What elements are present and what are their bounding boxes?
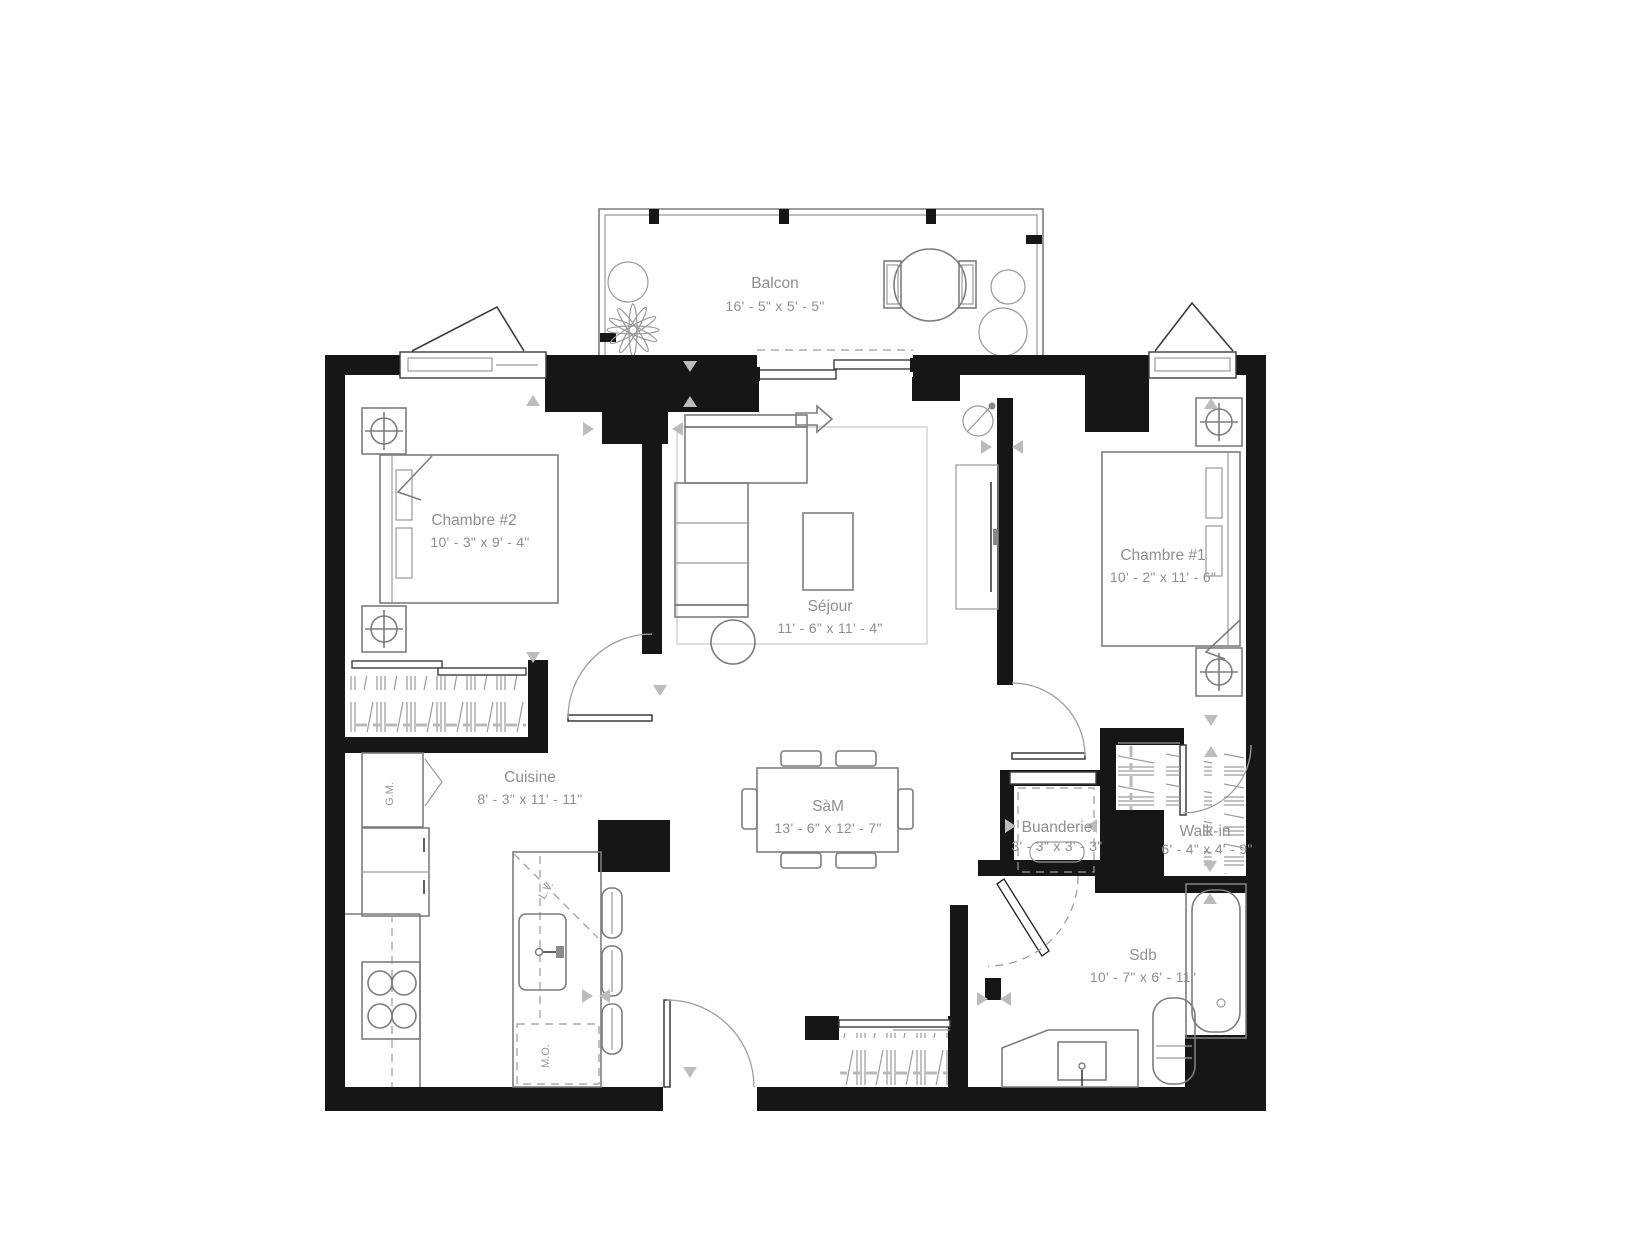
tub-drain	[1217, 999, 1225, 1007]
linen-closet-hanging	[1118, 746, 1180, 810]
bedroom2-furniture	[350, 408, 558, 732]
dishwasher-diagonal	[514, 854, 598, 938]
plant-bush	[979, 308, 1027, 356]
room-label-sdb: Sdb	[1129, 947, 1157, 964]
room-dims-chambre1: 10' - 2" x 11' - 6"	[1110, 569, 1216, 585]
kitchen-island	[513, 852, 601, 1087]
sofa-arm	[675, 605, 748, 617]
cabinet-door-fold	[425, 759, 442, 806]
bedroom1-door	[1012, 753, 1085, 759]
dining-chair	[742, 789, 757, 829]
railing-post	[649, 209, 659, 224]
entrance-door	[664, 1000, 670, 1087]
sliding-panel	[758, 370, 836, 379]
coffee-table	[803, 513, 853, 590]
railing-post	[926, 209, 936, 224]
blanket-fold	[398, 456, 432, 500]
vanity	[1002, 1030, 1138, 1087]
dining-chair	[836, 853, 876, 868]
pillow	[396, 470, 412, 520]
burner	[368, 1004, 392, 1028]
area-rug	[677, 427, 927, 644]
walls	[325, 355, 1266, 1111]
dining-chair	[836, 751, 876, 766]
closet-track	[352, 661, 442, 668]
pantry-label: G.M.	[384, 782, 396, 806]
room-label-sejour: Séjour	[808, 598, 853, 615]
window-sash-open	[412, 307, 524, 351]
plant-palm	[607, 304, 659, 356]
closet-track	[438, 668, 526, 675]
entrance-gap	[663, 1085, 757, 1113]
faucet	[1079, 1063, 1085, 1069]
appliance-labels: G.M. L.V. M.O.	[384, 782, 556, 1068]
room-dims-cuisine: 8' - 3" x 11' - 11"	[477, 791, 582, 807]
room-dims-walkin: 6' - 4" x 4' - 9"	[1161, 841, 1252, 857]
room-dims-chambre2: 10' - 3" x 9' - 4"	[430, 534, 529, 550]
faucet	[556, 946, 564, 958]
window	[1149, 352, 1236, 378]
railing-bracket	[600, 333, 616, 342]
arrow-symbol	[796, 406, 832, 432]
room-label-chambre2: Chambre #2	[431, 512, 516, 529]
room-dims-balcon: 16' - 5" x 5' - 5"	[725, 298, 824, 314]
bathroom-door	[997, 879, 1049, 956]
sofa-chaise	[685, 427, 807, 483]
dining-chair	[781, 853, 821, 868]
burner	[392, 1004, 416, 1028]
room-label-buanderie: Buanderie	[1022, 819, 1093, 836]
tv-mount	[993, 529, 998, 545]
dining-chair	[781, 751, 821, 766]
sofa-back	[685, 415, 807, 427]
entry-closet-hanging	[840, 1033, 948, 1085]
side-table	[711, 620, 755, 664]
microwave-label: M.O.	[540, 1044, 552, 1068]
window-sash-open	[1155, 303, 1233, 351]
room-label-sam: SàM	[812, 798, 844, 815]
room-dims-sejour: 11' - 6" x 11' - 4"	[777, 620, 882, 636]
microwave-space	[517, 1024, 599, 1084]
dining-chair	[898, 789, 913, 829]
sofa-body	[675, 483, 748, 605]
railing-post	[779, 209, 789, 224]
pillow	[1206, 468, 1222, 518]
balcony-table	[894, 249, 966, 321]
blanket-fold	[1206, 620, 1240, 659]
railing-bracket	[1026, 235, 1042, 244]
pillow	[396, 528, 412, 578]
laundry-door	[1010, 772, 1096, 784]
room-dims-sam: 13' - 6" x 12' - 7"	[774, 820, 881, 836]
closet-track	[839, 1020, 950, 1027]
room-label-balcon: Balcon	[751, 275, 798, 292]
burner	[392, 971, 416, 995]
plant-bush	[991, 270, 1025, 304]
room-dims-buanderie: 3' - 3" x 3' - 3"	[1011, 838, 1102, 854]
sliding-panel	[834, 360, 912, 369]
room-label-chambre1: Chambre #1	[1120, 547, 1205, 564]
balcony	[599, 209, 1043, 356]
bedroom2-door	[568, 715, 652, 721]
floor-plan-page: Balcon 16' - 5" x 5' - 5" Chambre #2 10'…	[0, 0, 1642, 1254]
walkin-door	[1180, 745, 1186, 815]
closet-hanging-clothes	[350, 676, 526, 732]
room-dims-sdb: 10' - 7" x 6' - 11"	[1090, 969, 1196, 985]
bed	[380, 455, 558, 603]
room-label-walkin: Walk-in	[1179, 823, 1230, 840]
plant-bush	[608, 262, 648, 302]
room-label-cuisine: Cuisine	[504, 769, 556, 786]
floor-plan-drawing: Balcon 16' - 5" x 5' - 5" Chambre #2 10'…	[0, 0, 1642, 1254]
burner	[368, 971, 392, 995]
